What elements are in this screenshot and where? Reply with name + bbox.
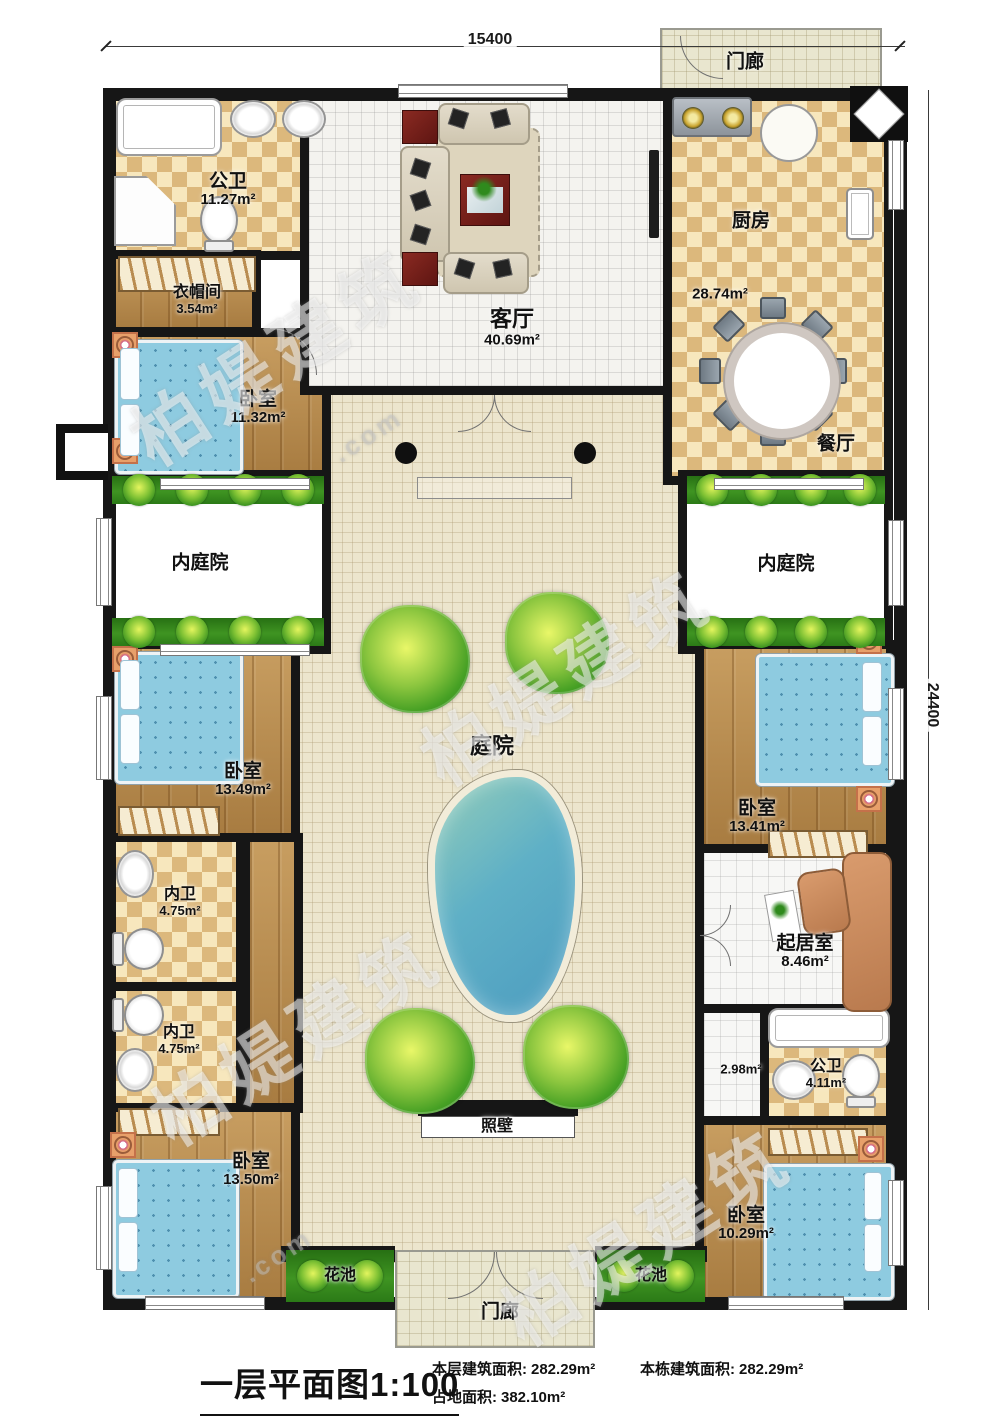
dimension-height-label: 24400 bbox=[923, 679, 941, 732]
plant-icon bbox=[795, 616, 827, 648]
room-label-porch-bottom: 门廊 bbox=[481, 1301, 519, 1322]
toilet bbox=[124, 928, 164, 970]
plant-icon bbox=[844, 616, 876, 648]
room-label-bedroom-ml: 卧室13.49m² bbox=[215, 761, 271, 799]
tv-cabinet bbox=[649, 150, 659, 238]
nightstand bbox=[110, 1132, 136, 1158]
floor-plan-canvas: 15400 24400 bbox=[0, 0, 1000, 1416]
armchair bbox=[796, 867, 852, 937]
room-label-cloakroom: 衣帽间3.54m² bbox=[173, 284, 221, 316]
toilet-tank bbox=[846, 1096, 876, 1108]
room-label-hall-small: 2.98m² bbox=[720, 1063, 761, 1078]
pillow bbox=[862, 662, 882, 712]
window bbox=[888, 1180, 904, 1266]
burner-icon bbox=[682, 107, 704, 129]
room-label-living: 客厅40.69m² bbox=[484, 307, 540, 348]
pillow bbox=[118, 1168, 138, 1218]
side-table bbox=[402, 110, 438, 144]
room-label-bedroom-mr: 卧室13.41m² bbox=[729, 798, 785, 836]
room-label-public-bath-top: 公卫11.27m² bbox=[200, 171, 255, 209]
sink bbox=[116, 1048, 154, 1092]
room-label-bedroom-bl: 卧室13.50m² bbox=[223, 1151, 279, 1189]
room-corridor-left bbox=[241, 833, 303, 1113]
burner-icon bbox=[722, 107, 744, 129]
window bbox=[728, 1296, 844, 1310]
room-label-bath-ml2: 内卫4.75m² bbox=[158, 1024, 199, 1056]
room-label-screen-wall: 照壁 bbox=[481, 1118, 513, 1136]
room-label-inner-court-left: 内庭院 bbox=[171, 552, 228, 573]
toilet-tank bbox=[112, 998, 124, 1032]
hedge-strip bbox=[687, 618, 885, 646]
room-label-inner-court-right: 内庭院 bbox=[757, 553, 814, 574]
stat-land-area: 占地面积:382.10m² bbox=[432, 1386, 565, 1407]
chimney-corner bbox=[850, 86, 908, 142]
room-label-dining: 餐厅 bbox=[817, 433, 855, 454]
window bbox=[714, 478, 864, 490]
sink bbox=[230, 100, 276, 138]
wardrobe bbox=[768, 1128, 868, 1156]
dining-chair bbox=[760, 297, 786, 319]
window bbox=[888, 688, 904, 780]
room-label-bath-ml1: 内卫4.75m² bbox=[159, 886, 200, 918]
kitchen-round-fixture bbox=[760, 104, 818, 162]
nightstand bbox=[856, 786, 882, 812]
pillow bbox=[862, 716, 882, 766]
room-label-kitchen: 厨房 bbox=[732, 210, 770, 231]
plan-title: 一层平面图1:100 bbox=[200, 1358, 459, 1416]
side-table bbox=[402, 252, 438, 286]
window bbox=[96, 696, 112, 780]
pillow bbox=[120, 660, 140, 710]
tree-icon bbox=[523, 1005, 629, 1109]
sink bbox=[116, 850, 154, 898]
room-label-porch-top: 门廊 bbox=[726, 51, 764, 72]
window bbox=[160, 478, 310, 490]
room-label-bedroom-br: 卧室10.29m² bbox=[718, 1205, 774, 1243]
window bbox=[160, 644, 310, 656]
stat-building-area: 本栋建筑面积:282.29m² bbox=[640, 1358, 803, 1379]
wardrobe bbox=[118, 806, 220, 836]
stat-floor-area: 本层建筑面积:282.29m² bbox=[432, 1358, 595, 1379]
kitchen-sink bbox=[846, 188, 874, 240]
plant-icon bbox=[696, 616, 728, 648]
cushion bbox=[492, 258, 512, 278]
tree-icon bbox=[505, 592, 609, 694]
hedge-strip bbox=[112, 618, 324, 646]
window bbox=[96, 518, 112, 606]
plant-icon bbox=[745, 616, 777, 648]
plant-icon bbox=[770, 900, 790, 920]
dining-table bbox=[725, 324, 839, 438]
bathtub bbox=[116, 98, 222, 156]
dining-chair bbox=[699, 358, 721, 384]
chimney-flue bbox=[854, 89, 905, 140]
room-label-courtyard: 庭院 bbox=[470, 735, 514, 760]
tree-icon bbox=[365, 1008, 475, 1114]
room-porch-bottom bbox=[395, 1250, 595, 1348]
room-label-bath-br: 公卫4.11m² bbox=[806, 1058, 846, 1090]
dimension-width-label: 15400 bbox=[464, 31, 517, 49]
nightstand bbox=[858, 1136, 884, 1162]
room-label-sitting: 起居室8.46m² bbox=[776, 933, 833, 971]
room-label-bedroom-tl: 卧室11.32m² bbox=[230, 389, 285, 427]
room-label-kitchen-area: 28.74m² bbox=[692, 287, 748, 304]
stove bbox=[672, 97, 752, 137]
column bbox=[574, 442, 596, 464]
pillow bbox=[118, 1222, 138, 1272]
window bbox=[398, 84, 568, 98]
tree-icon bbox=[360, 605, 470, 713]
bay-niche-left bbox=[56, 424, 108, 480]
entry-step bbox=[417, 477, 572, 499]
plant-icon bbox=[123, 616, 155, 648]
pillow bbox=[120, 714, 140, 764]
toilet-tank bbox=[204, 240, 234, 252]
pillow bbox=[864, 1172, 882, 1220]
pillow bbox=[120, 348, 140, 400]
window bbox=[96, 1186, 112, 1270]
sofa bbox=[842, 852, 892, 1012]
toilet bbox=[842, 1054, 880, 1098]
pillow bbox=[120, 404, 140, 456]
toilet-tank bbox=[112, 932, 124, 966]
room-label-flower-bed-right: 花池 bbox=[635, 1267, 667, 1285]
bathtub bbox=[768, 1008, 890, 1048]
window bbox=[888, 520, 904, 606]
pillow bbox=[864, 1224, 882, 1272]
sink bbox=[282, 100, 326, 138]
window bbox=[888, 140, 904, 210]
plant-icon bbox=[123, 474, 155, 506]
room-label-flower-bed-left: 花池 bbox=[324, 1267, 356, 1285]
window bbox=[145, 1296, 265, 1310]
plant-icon bbox=[471, 176, 497, 202]
column bbox=[395, 442, 417, 464]
